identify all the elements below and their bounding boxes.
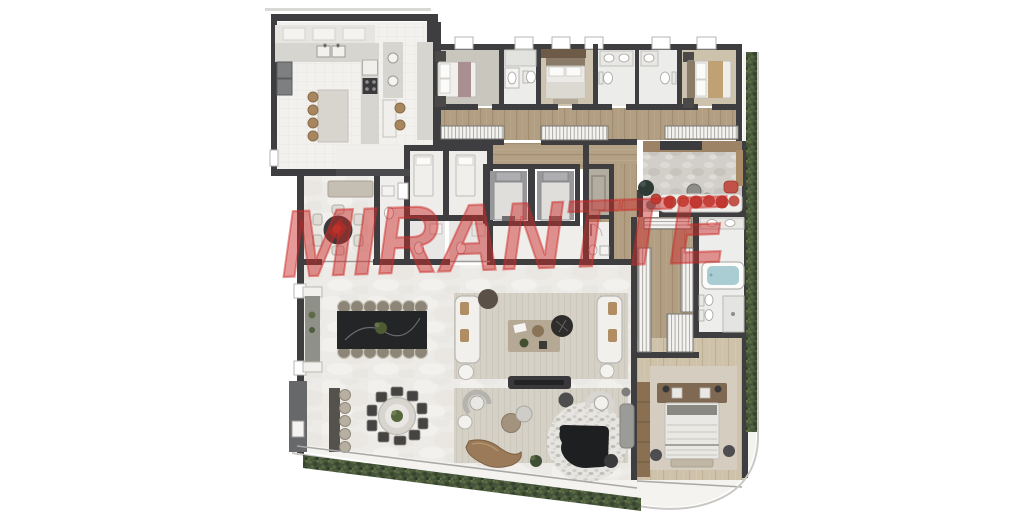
svg-text:MIRANTTE: MIRANTTE (279, 176, 730, 298)
